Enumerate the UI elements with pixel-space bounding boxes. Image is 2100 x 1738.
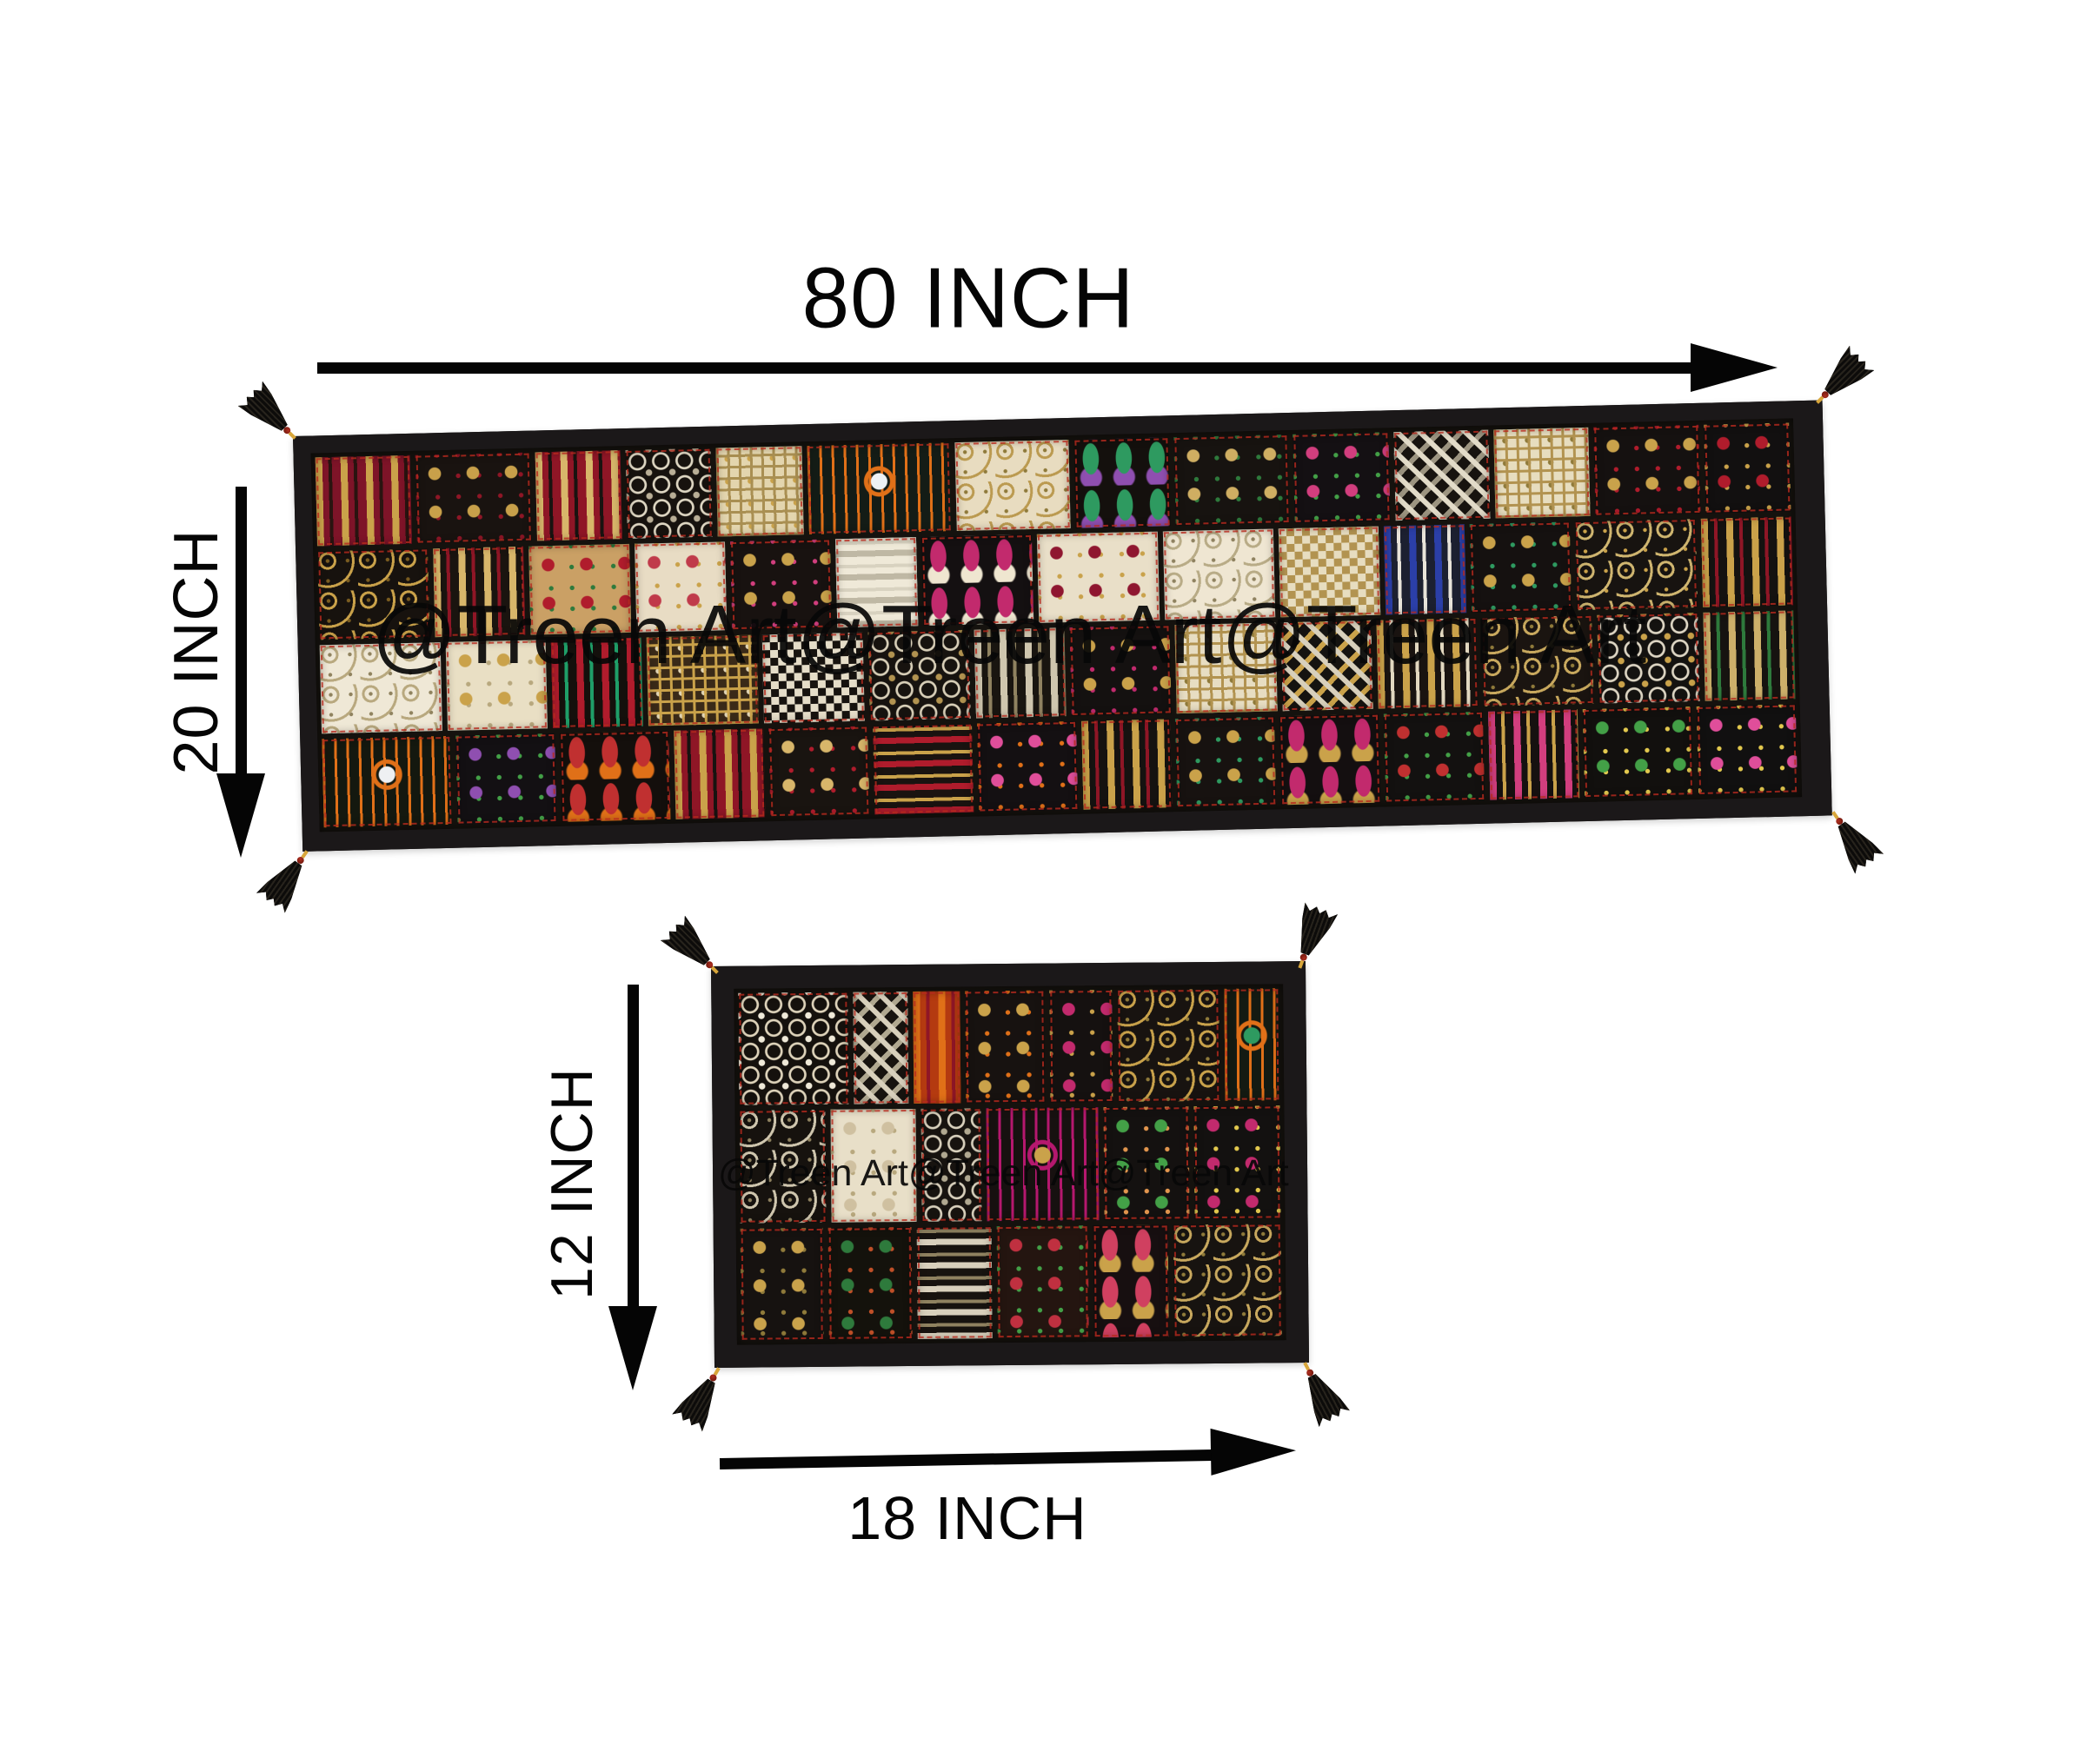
mat-patch xyxy=(1049,990,1113,1103)
runner-patch xyxy=(1582,706,1693,798)
runner-patch xyxy=(977,721,1078,813)
runner-patch xyxy=(625,448,713,539)
mat-patch xyxy=(1224,988,1279,1101)
mat-patch xyxy=(997,1225,1089,1338)
watermark-runner: @Treen Art@Treen Art@Treen Art xyxy=(372,587,1646,683)
runner-patch xyxy=(1175,716,1276,807)
mat-width-arrowhead-icon xyxy=(1211,1427,1297,1476)
runner-patch xyxy=(954,440,1071,531)
runner-patch xyxy=(1384,712,1485,803)
mat-patch xyxy=(828,1227,913,1340)
runner-patch xyxy=(1697,704,1798,795)
product-photo-canvas: 80 INCH 20 INCH @Treen Art@Treen Art@Tre… xyxy=(0,0,2100,1738)
mat-height-arrowhead-icon xyxy=(608,1306,657,1390)
mat-patch xyxy=(853,992,908,1104)
watermark-mat: @Treen Art@Treen Art@Treen Art xyxy=(718,1152,1289,1195)
runner-width-arrowhead-icon xyxy=(1691,343,1778,392)
runner-patch xyxy=(455,733,556,825)
mat-patch xyxy=(738,992,848,1105)
runner-patch xyxy=(1173,434,1290,526)
runner-patch xyxy=(1293,432,1391,523)
runner-height-label: 20 INCH xyxy=(161,528,232,774)
runner-width-label: 80 INCH xyxy=(802,249,1135,348)
runner-patch xyxy=(1393,430,1491,521)
mat-patch xyxy=(741,1228,825,1341)
runner-patch xyxy=(1704,422,1791,513)
runner-patch xyxy=(535,450,622,541)
runner-patch xyxy=(322,736,452,827)
runner-height-arrowhead-icon xyxy=(216,773,265,858)
mat-height-arrow-shaft xyxy=(628,985,639,1306)
mat-patch xyxy=(966,991,1045,1104)
runner-patch xyxy=(807,442,951,534)
runner-patch xyxy=(1488,709,1579,799)
mat-patch xyxy=(917,1226,993,1339)
mat-height-label: 12 INCH xyxy=(538,1067,606,1300)
runner-patch xyxy=(1493,428,1591,519)
runner-patch xyxy=(716,446,804,536)
mat-width-arrow-shaft xyxy=(720,1449,1213,1469)
mat-width-label: 18 INCH xyxy=(847,1483,1087,1553)
runner-patch xyxy=(560,731,671,822)
runner-patch xyxy=(415,453,532,544)
runner-patch xyxy=(1703,610,1795,700)
mat-row xyxy=(741,1224,1282,1341)
mat-patch xyxy=(1173,1224,1281,1337)
runner-patch xyxy=(1701,516,1793,607)
runner-patch xyxy=(316,455,413,547)
mat-patch xyxy=(1093,1224,1169,1337)
runner-width-arrow-shaft xyxy=(317,362,1691,374)
runner-patch xyxy=(1279,714,1380,806)
runner-patch xyxy=(675,728,766,819)
mat-patch xyxy=(914,991,961,1104)
runner-patch xyxy=(1081,719,1173,809)
runner-patch xyxy=(1073,437,1171,528)
runner-patch xyxy=(1594,425,1701,516)
runner-patch xyxy=(873,724,974,815)
runner-patch xyxy=(768,726,869,818)
mat-patch xyxy=(1117,989,1219,1102)
mat-row xyxy=(738,988,1279,1105)
runner-height-arrow-shaft xyxy=(236,487,247,775)
